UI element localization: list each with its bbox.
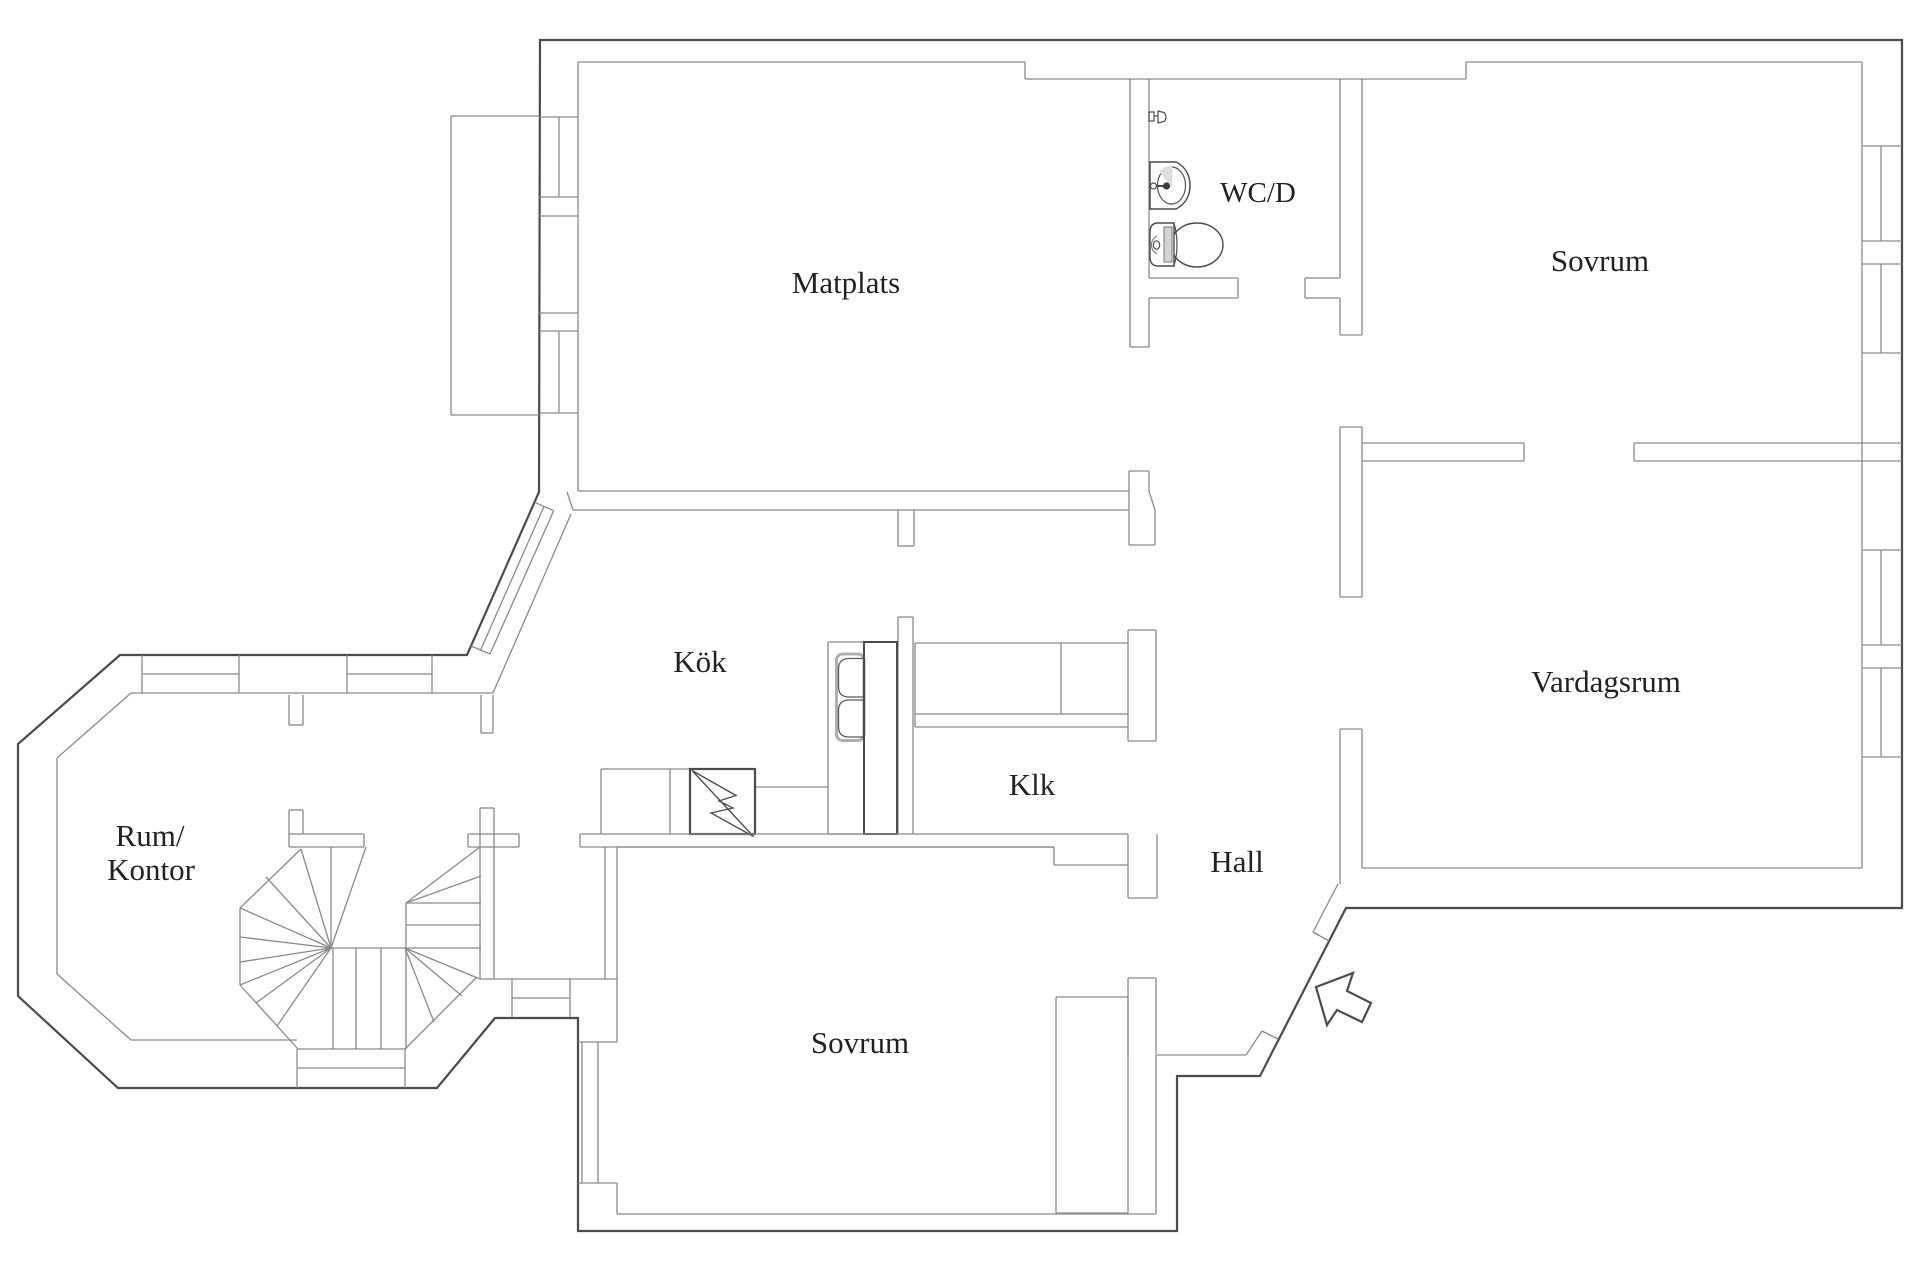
svg-text:Sovrum: Sovrum xyxy=(811,1025,909,1060)
svg-text:Vardagsrum: Vardagsrum xyxy=(1531,664,1681,699)
svg-text:Kontor: Kontor xyxy=(107,852,196,887)
svg-text:Klk: Klk xyxy=(1009,767,1056,802)
svg-text:Hall: Hall xyxy=(1210,844,1263,879)
svg-text:Sovrum: Sovrum xyxy=(1551,243,1649,278)
svg-text:Rum/: Rum/ xyxy=(116,818,185,853)
svg-text:Matplats: Matplats xyxy=(792,265,901,300)
svg-text:WC/D: WC/D xyxy=(1220,177,1296,209)
svg-text:Kök: Kök xyxy=(673,644,727,679)
